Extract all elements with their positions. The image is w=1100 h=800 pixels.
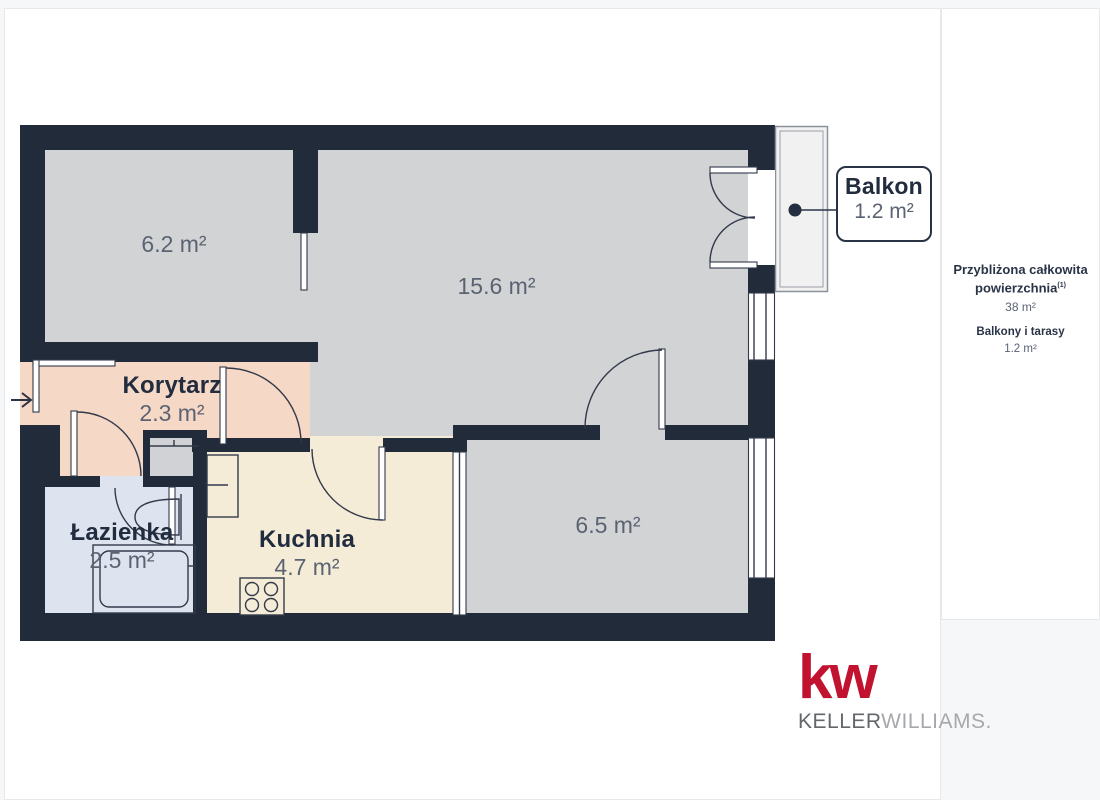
wall-kitchen-top-right — [383, 438, 455, 452]
wall-above-int-window — [453, 440, 467, 452]
room-area: 4.7 m² — [237, 554, 377, 581]
room-6-2-label: 6.2 m² — [124, 231, 224, 258]
balcony-callout: Balkon 1.2 m² — [836, 166, 932, 242]
balconies-label: Balkony i tarasy — [941, 326, 1100, 338]
wall-right-a — [748, 150, 775, 170]
corridor-label: Korytarz 2.3 m² — [97, 372, 247, 427]
wall-step-right — [665, 425, 748, 440]
total-area-value: 38 m² — [941, 300, 1100, 314]
room-name: Łazienka — [47, 519, 197, 547]
room-area: 1.2 m² — [838, 200, 930, 224]
kw-logo-mark: kw — [798, 648, 992, 708]
footnote-marker: (1) — [1057, 282, 1066, 289]
wall-right-d — [748, 578, 775, 613]
kitchen-label: Kuchnia 4.7 m² — [237, 526, 377, 581]
room-area: 2.5 m² — [47, 547, 197, 574]
wall-right-b — [748, 265, 775, 293]
room-name: Korytarz — [97, 372, 247, 400]
summary-panel — [941, 8, 1100, 620]
wall-step-left — [453, 425, 600, 440]
bathroom-label: Łazienka 2.5 m² — [47, 519, 197, 574]
room-area: 6.5 m² — [558, 512, 658, 539]
wall-corridor-top — [20, 342, 318, 362]
total-area-label: Przybliżona całkowita powierzchnia(1) — [941, 262, 1100, 296]
wall-top — [20, 125, 775, 150]
kw-logo-wordmark: KELLERWILLIAMS. — [798, 710, 992, 734]
balconies-value: 1.2 m² — [941, 343, 1100, 355]
room-6-5-label: 6.5 m² — [558, 512, 658, 539]
wall-left-lower — [20, 425, 45, 641]
wall-kitchen-top-left — [192, 438, 310, 452]
room-area: 15.6 m² — [444, 273, 549, 300]
wall-right-c — [748, 360, 775, 438]
wall-left-upper — [20, 150, 45, 345]
wall-niche-chunk — [45, 425, 60, 476]
room-name: Kuchnia — [237, 526, 377, 554]
room-15-6-label: 15.6 m² — [444, 273, 549, 300]
room-area: 6.2 m² — [124, 231, 224, 258]
wall-bath-band-left — [45, 476, 100, 487]
room-area: 2.3 m² — [97, 400, 247, 427]
wall-stub-62-main — [293, 150, 318, 233]
corridor-pocket-floor — [60, 440, 143, 477]
wall-bottom — [20, 613, 775, 641]
room-name: Balkon — [838, 173, 930, 200]
keller-williams-logo: kw KELLERWILLIAMS. — [798, 648, 992, 734]
